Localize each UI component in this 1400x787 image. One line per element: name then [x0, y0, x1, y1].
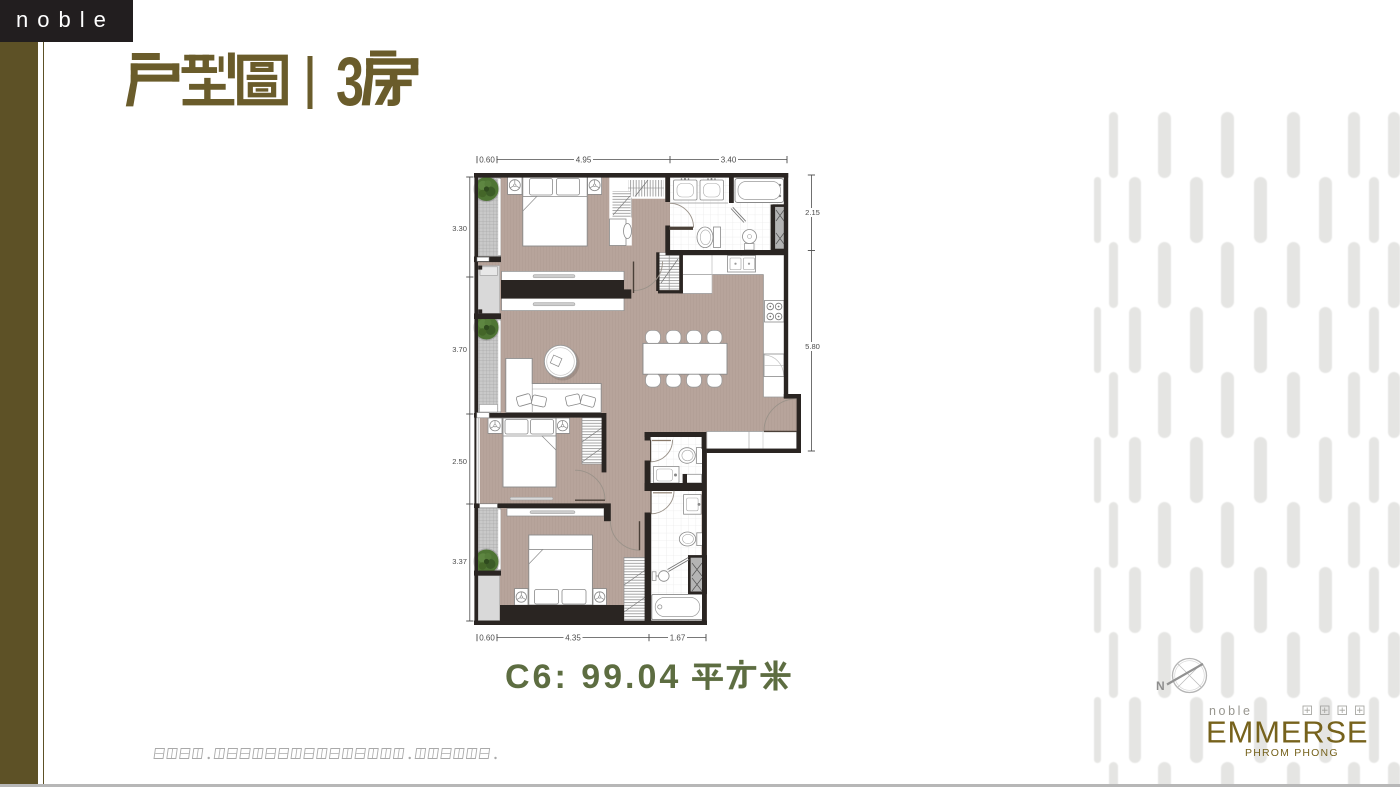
- svg-text:3.40: 3.40: [721, 155, 737, 164]
- svg-text:PHROM PHONG: PHROM PHONG: [1245, 747, 1339, 759]
- svg-text:1.67: 1.67: [670, 633, 686, 642]
- svg-text:N: N: [1156, 679, 1165, 693]
- svg-text:5.80: 5.80: [805, 342, 820, 351]
- svg-text:2.15: 2.15: [805, 208, 820, 217]
- svg-text:EMMERSE: EMMERSE: [1206, 715, 1368, 750]
